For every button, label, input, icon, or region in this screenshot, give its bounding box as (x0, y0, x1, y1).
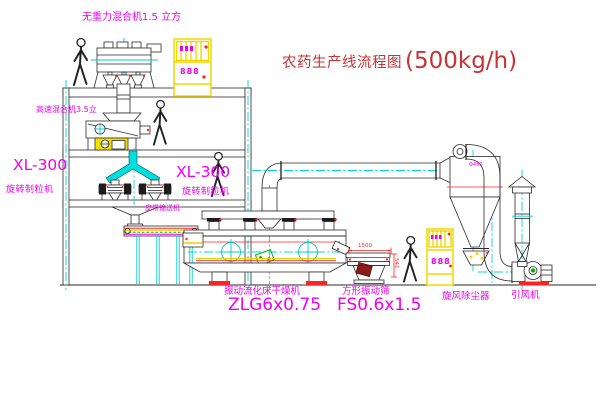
fluid-bed-dryer (183, 211, 346, 285)
dimension-sieve-height: 541 (393, 258, 399, 269)
label-belt-conveyor: 皮带输送机 (145, 205, 180, 212)
cabinet-left-display: 888 (180, 68, 200, 76)
dimension-sieve-length: 1500 (358, 244, 372, 250)
diagram-title: 农药生产线流程图 (500kg/h) (282, 48, 517, 74)
worker-figure-1 (74, 39, 87, 86)
label-gravity-free-mixer: 无重力混合机1.5 立方 (82, 13, 181, 23)
label-mid-mixer: 高速混合机3.5立 (36, 106, 97, 114)
vibrating-sieve (346, 248, 397, 284)
exhaust-duct (262, 157, 452, 212)
label-granulator-right-name: 旋转制粒机 (182, 188, 230, 197)
cyclone-size-note: Φ480 (469, 163, 482, 168)
label-granulator-left-model: XL-300 (13, 158, 67, 174)
label-granulator-right-model: XL-300 (176, 165, 230, 181)
worker-figure-2 (154, 100, 166, 144)
cabinet-right-display: 888 (431, 258, 451, 266)
gravity-free-mixer (91, 42, 161, 88)
label-sieve-model: FS0.6x1.5 (337, 297, 421, 314)
label-granulator-left-name: 旋转制粒机 (6, 186, 54, 195)
label-fan: 引风机 (511, 291, 540, 301)
title-capacity: (500kg/h) (405, 48, 517, 74)
label-dryer-model: ZLG6x0.75 (228, 297, 321, 314)
granulator-right (139, 180, 171, 200)
title-text: 农药生产线流程图 (282, 51, 402, 72)
granulator-left (99, 180, 131, 200)
worker-figure-4 (404, 236, 417, 281)
process-flow-diagram: 农药生产线流程图 (500kg/h) 无重力混合机1.5 立方 高速混合机3.5… (0, 0, 600, 403)
label-cyclone: 旋风除尘器 (442, 292, 490, 302)
